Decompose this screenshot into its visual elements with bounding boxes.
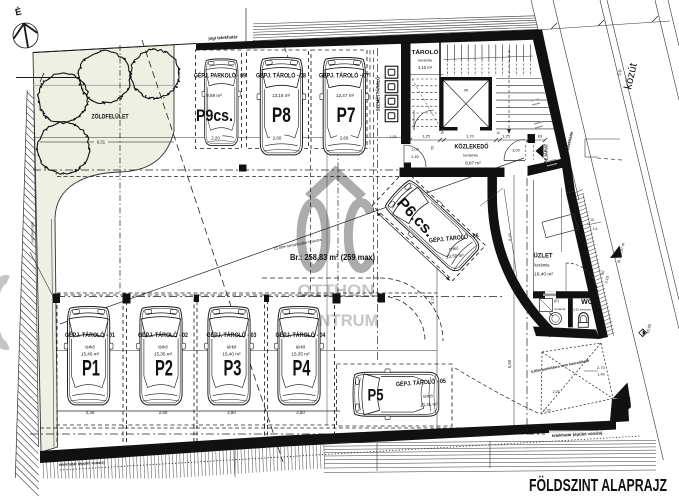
svg-text:2,25: 2,25 xyxy=(553,390,560,394)
svg-text:térkő: térkő xyxy=(227,345,237,350)
svg-text:63: 63 xyxy=(538,134,542,139)
svg-text:P4: P4 xyxy=(293,356,312,381)
svg-text:WC: WC xyxy=(581,299,593,306)
svg-text:1,70: 1,70 xyxy=(466,134,474,139)
svg-text:(E): (E) xyxy=(554,299,559,303)
svg-text:1,25: 1,25 xyxy=(422,134,430,139)
svg-text:4,10 m²: 4,10 m² xyxy=(418,65,433,70)
svg-text:ÜZLET: ÜZLET xyxy=(534,251,553,260)
svg-text:GÉPJ. TÁROLÓ - 08: GÉPJ. TÁROLÓ - 08 xyxy=(256,72,306,80)
svg-text:térkő: térkő xyxy=(85,345,95,350)
svg-text:10: 10 xyxy=(440,131,444,135)
svg-text:P5: P5 xyxy=(368,386,384,405)
svg-text:GÉPJ. TÁROLÓ - 01: GÉPJ. TÁROLÓ - 01 xyxy=(65,331,115,339)
svg-text:12,47 m²: 12,47 m² xyxy=(336,93,355,98)
svg-text:ZÖLDFELÜLET: ZÖLDFELÜLET xyxy=(92,112,129,121)
svg-text:Br.: 258,83 m² (259 max): Br.: 258,83 m² (259 max) xyxy=(290,253,375,262)
svg-text:3,00: 3,00 xyxy=(512,149,519,153)
svg-text:2,20: 2,20 xyxy=(211,136,220,141)
svg-text:P2: P2 xyxy=(155,356,173,381)
svg-text:10: 10 xyxy=(590,218,594,222)
svg-text:P8: P8 xyxy=(272,104,291,127)
svg-text:2,40: 2,40 xyxy=(411,155,418,159)
svg-text:térkő: térkő xyxy=(423,393,433,399)
svg-text:BEJÁRAT: BEJÁRAT xyxy=(544,143,549,163)
svg-text:9,73: 9,73 xyxy=(430,295,435,304)
svg-text:16,40 m²: 16,40 m² xyxy=(534,272,553,278)
svg-text:1,00: 1,00 xyxy=(411,148,418,152)
svg-text:jogi telekhatár: jogi telekhatár xyxy=(31,221,35,244)
svg-text:P9cs.: P9cs. xyxy=(196,106,233,125)
svg-text:térkő: térkő xyxy=(296,345,306,350)
svg-text:FÖLDSZINT ALAPRAJZ: FÖLDSZINT ALAPRAJZ xyxy=(529,475,667,495)
svg-text:kerámia: kerámia xyxy=(535,263,551,268)
svg-text:9,89 m²: 9,89 m² xyxy=(206,93,222,98)
svg-text:P7: P7 xyxy=(337,104,356,127)
svg-text:P1: P1 xyxy=(82,356,100,381)
svg-text:KÖZLEKEDŐ: KÖZLEKEDŐ xyxy=(455,144,489,151)
svg-text:P3: P3 xyxy=(224,356,242,381)
svg-text:GÉPJ. TÁROLÓ - 04: GÉPJ. TÁROLÓ - 04 xyxy=(276,331,326,339)
svg-text:GÉPJ. TÁROLÓ - 07: GÉPJ. TÁROLÓ - 07 xyxy=(319,72,369,80)
svg-text:térkő: térkő xyxy=(158,345,168,350)
svg-text:kerámia: kerámia xyxy=(555,307,566,311)
svg-text:2,60: 2,60 xyxy=(273,136,282,141)
svg-text:2,10 kerámia: 2,10 kerámia xyxy=(573,308,591,312)
svg-text:13,16 m²: 13,16 m² xyxy=(272,93,291,98)
svg-text:5,50: 5,50 xyxy=(507,359,512,368)
svg-text:50: 50 xyxy=(431,146,435,150)
svg-text:8,97 m²: 8,97 m² xyxy=(465,161,481,166)
svg-text:1,6: 1,6 xyxy=(593,227,598,231)
svg-text:6,31: 6,31 xyxy=(97,140,106,145)
svg-text:1,25: 1,25 xyxy=(502,134,510,139)
svg-text:2,70: 2,70 xyxy=(597,366,604,370)
svg-text:2,60: 2,60 xyxy=(340,136,349,141)
svg-text:10: 10 xyxy=(496,131,500,135)
svg-text:GÉPJ. TÁROLÓ - 02: GÉPJ. TÁROLÓ - 02 xyxy=(138,331,188,339)
svg-text:kerámia: kerámia xyxy=(418,59,432,63)
svg-text:1,40: 1,40 xyxy=(597,373,604,377)
svg-text:GÉPJ. PARKOLÓ - 09: GÉPJ. PARKOLÓ - 09 xyxy=(194,72,246,80)
svg-text:7,20: 7,20 xyxy=(543,409,550,413)
svg-text:TÁROLÓ: TÁROLÓ xyxy=(412,48,440,56)
svg-text:kerámia: kerámia xyxy=(463,153,478,158)
svg-text:SZEMÉTTÁROLÓ: SZEMÉTTÁROLÓ xyxy=(376,76,381,111)
svg-text:1,05: 1,05 xyxy=(390,135,397,139)
svg-text:GÉPJ. TÁROLÓ - 03: GÉPJ. TÁROLÓ - 03 xyxy=(207,331,257,339)
svg-text:térkő: térkő xyxy=(449,245,459,251)
svg-text:6,43: 6,43 xyxy=(508,233,512,240)
